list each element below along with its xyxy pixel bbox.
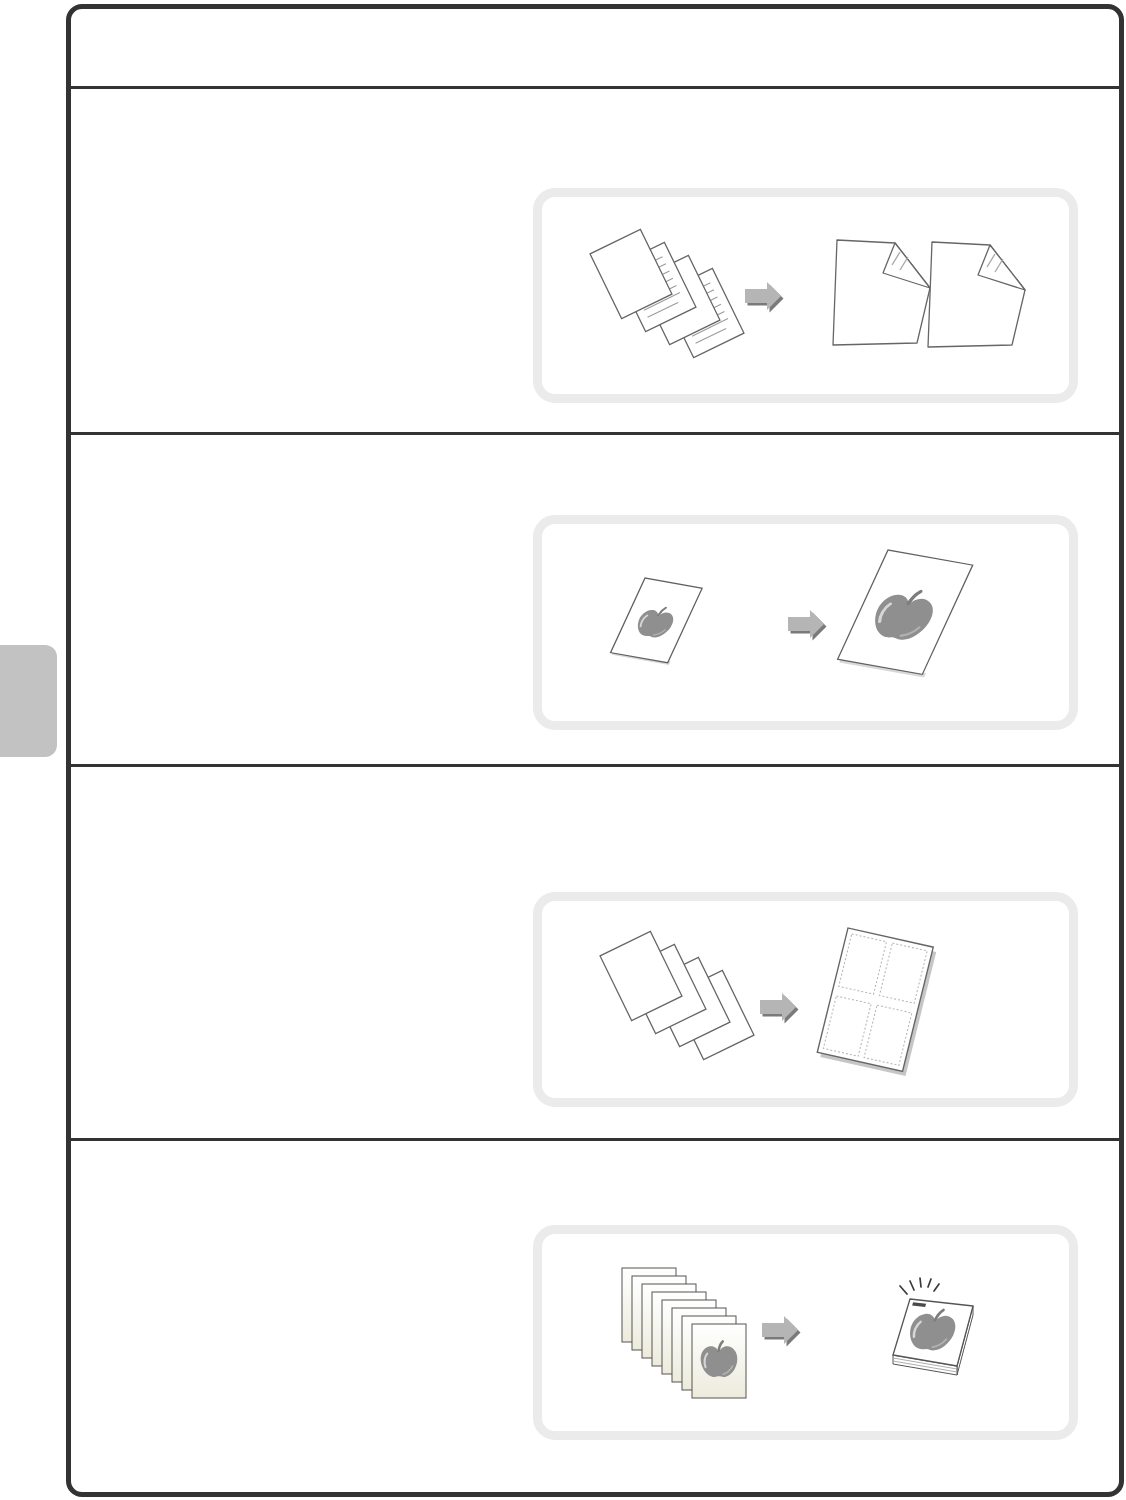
staple-sparkle-icon (900, 1278, 939, 1294)
section-divider-1 (71, 432, 1119, 435)
four-up-combined-sheet-icon (816, 928, 937, 1076)
right-arrow-icon (762, 1316, 801, 1347)
page-index-tab (0, 645, 57, 757)
four-up-artwork (542, 901, 1069, 1098)
illustration-enlarged-copy (533, 515, 1078, 730)
stack-of-four-blank-originals-icon (600, 931, 754, 1059)
section-divider-2 (71, 764, 1119, 767)
stack-of-eight-apple-pages-icon (622, 1268, 746, 1398)
header-band (71, 9, 1119, 86)
illustration-four-up-copy (533, 892, 1078, 1107)
two-sided-copying-artwork (542, 197, 1069, 394)
stapled-booklet-icon (893, 1278, 973, 1375)
illustration-two-sided-copying (533, 188, 1078, 403)
manual-page (0, 0, 1126, 1500)
small-apple-original-icon (610, 578, 704, 665)
enlarged-apple-copy-icon (836, 550, 975, 678)
right-arrow-icon (745, 282, 784, 313)
two-sided-copies-folded-corner-icon (833, 240, 1025, 347)
page-frame (66, 4, 1124, 1497)
header-divider (71, 86, 1119, 89)
illustration-staple-sort (533, 1225, 1078, 1440)
staple-sort-artwork (542, 1234, 1069, 1431)
right-arrow-icon (788, 610, 827, 641)
right-arrow-icon (760, 993, 799, 1024)
stack-of-four-originals-icon (590, 229, 744, 357)
enlarged-copy-artwork (542, 524, 1069, 721)
section-divider-3 (71, 1138, 1119, 1141)
